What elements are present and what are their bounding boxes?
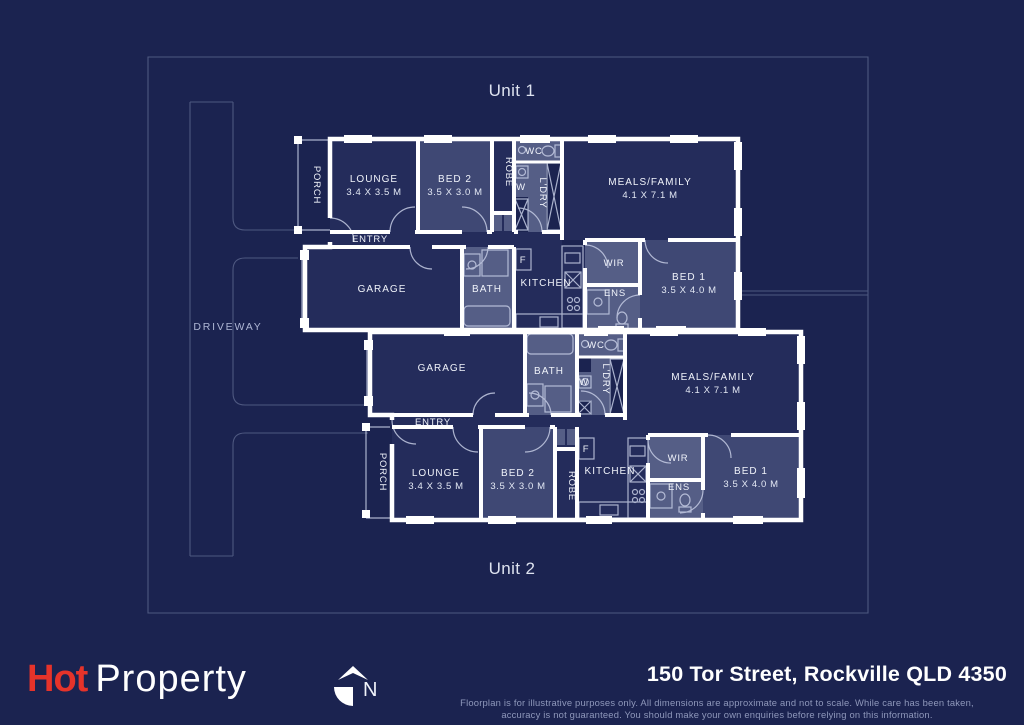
property-address: 150 Tor Street, Rockville QLD 4350 <box>307 662 1007 687</box>
u1-bed2-dims: 3.5 X 3.0 M <box>427 187 482 198</box>
u2-meals-label: MEALS/FAMILY <box>671 372 755 383</box>
floorplan-drawing: Unit 1 Unit 2 DRIVEWAY PORCH LOUNGE 3.4 … <box>0 0 1024 725</box>
u1-ldry-label: L'DRY <box>537 178 548 209</box>
brand-logo: HotProperty <box>27 655 247 703</box>
u1-washer-label: W <box>516 182 526 193</box>
u2-ens-label: ENS <box>668 482 690 493</box>
u2-bed2-dims: 3.5 X 3.0 M <box>490 481 545 492</box>
u2-entry-label: ENTRY <box>415 417 451 428</box>
brand-property: Property <box>95 658 247 700</box>
u1-wir-label: WIR <box>604 258 625 269</box>
u2-ldry-label: L'DRY <box>600 364 611 395</box>
u2-bed2-label: BED 2 <box>501 468 535 479</box>
u1-bed1-dims: 3.5 X 4.0 M <box>661 285 716 296</box>
u2-washer-label: W <box>579 377 589 388</box>
u1-bath-label: BATH <box>472 284 502 295</box>
floorplan-page: Unit 1 Unit 2 DRIVEWAY PORCH LOUNGE 3.4 … <box>0 0 1024 725</box>
robe-door-u2b <box>567 429 576 445</box>
u1-wc-label: WC <box>525 146 542 157</box>
fence-line <box>742 291 868 295</box>
driveway-label: DRIVEWAY <box>193 321 262 333</box>
room-meals-u1 <box>562 137 738 240</box>
u1-bed2-label: BED 2 <box>438 174 472 185</box>
u2-kitchen-label: KITCHEN <box>585 466 636 477</box>
u2-fridge-label: F <box>583 444 590 455</box>
u2-wc-label: WC <box>587 340 604 351</box>
disclaimer-line-2: accuracy is not guaranteed. You should m… <box>427 709 1007 721</box>
u1-porch-label: PORCH <box>311 166 322 204</box>
u1-kitchen-label: KITCHEN <box>521 278 572 289</box>
disclaimer-line-1: Floorplan is for illustrative purposes o… <box>427 697 1007 709</box>
disclaimer-text: Floorplan is for illustrative purposes o… <box>427 697 1007 720</box>
u2-porch-label: PORCH <box>377 453 388 491</box>
u1-meals-label: MEALS/FAMILY <box>608 177 692 188</box>
brand-hot: Hot <box>27 658 87 700</box>
unit2-title: Unit 2 <box>489 559 536 578</box>
u2-meals-dims: 4.1 X 7.1 M <box>685 385 740 396</box>
robe-door-u1b <box>504 215 513 231</box>
room-meals-u2 <box>625 332 801 435</box>
robe-door-u2a <box>556 429 565 445</box>
unit1-title: Unit 1 <box>489 81 536 100</box>
u1-entry-label: ENTRY <box>352 234 388 245</box>
u2-bath-label: BATH <box>534 366 564 377</box>
u2-bed1-dims: 3.5 X 4.0 M <box>723 479 778 490</box>
u2-lounge-dims: 3.4 X 3.5 M <box>408 481 463 492</box>
u2-bed1-label: BED 1 <box>734 466 768 477</box>
u2-garage-label: GARAGE <box>418 363 467 374</box>
u1-lounge-dims: 3.4 X 3.5 M <box>346 187 401 198</box>
u1-ens-label: ENS <box>604 288 626 299</box>
u1-meals-dims: 4.1 X 7.1 M <box>622 190 677 201</box>
u1-robe-label: ROBE <box>503 157 514 187</box>
u2-wir-label: WIR <box>668 453 689 464</box>
u2-robe-label: ROBE <box>566 471 577 501</box>
u1-lounge-label: LOUNGE <box>350 174 398 185</box>
robe-door-u1a <box>493 215 502 231</box>
u2-lounge-label: LOUNGE <box>412 468 460 479</box>
u1-garage-label: GARAGE <box>358 284 407 295</box>
room-bed1-u2 <box>703 435 801 520</box>
u1-fridge-label: F <box>520 255 527 266</box>
u1-bed1-label: BED 1 <box>672 272 706 283</box>
